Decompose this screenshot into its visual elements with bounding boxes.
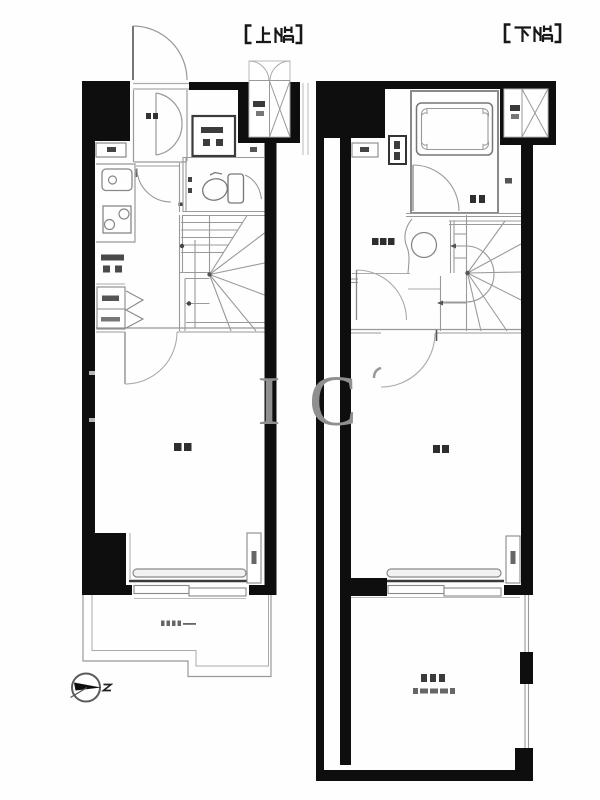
svg-text:I: I [257, 363, 280, 440]
svg-text:C: C [309, 361, 357, 441]
